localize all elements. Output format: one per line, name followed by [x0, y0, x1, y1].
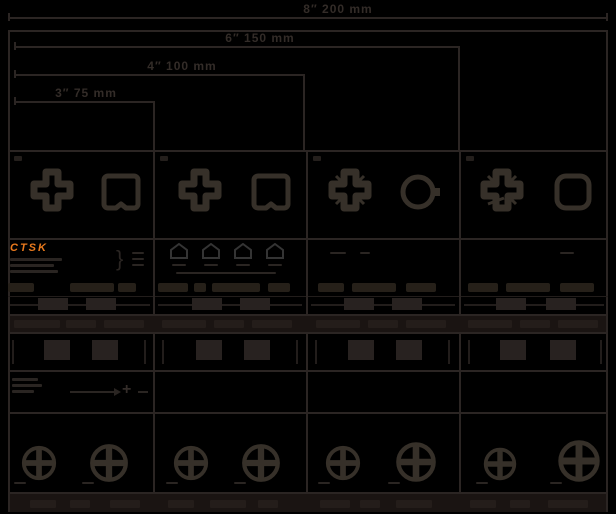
- band-token: [406, 320, 446, 328]
- row-divider: [8, 296, 608, 297]
- band-token: [316, 320, 360, 328]
- dimension-label-75mm: 3″ 75 mm: [32, 86, 140, 100]
- edge-tick: [144, 340, 146, 364]
- dimension-tick: [606, 13, 608, 21]
- code-box: [546, 298, 576, 310]
- text-blob: [132, 258, 144, 260]
- code-box: [550, 340, 576, 360]
- screw-size-blob: [82, 482, 94, 484]
- edge-tick: [600, 340, 602, 364]
- screw-head-icon: [482, 446, 518, 482]
- edge-tick: [162, 340, 164, 364]
- dimension-line: [14, 74, 305, 76]
- text-blob: [560, 252, 574, 254]
- band-token: [210, 500, 246, 508]
- screw-recess-icon: [552, 172, 594, 212]
- spec-chart: 8″ 200 mm 6″ 150 mm 4″ 100 mm 3″ 75 mm: [0, 0, 616, 514]
- text-blob: [204, 264, 218, 266]
- bit-tip-cross-mark: +: [122, 382, 131, 398]
- tip-profile-icon: [234, 243, 252, 259]
- code-line: [311, 304, 455, 306]
- label-chip: [8, 283, 34, 292]
- label-chip: [212, 283, 260, 292]
- cell-corner-mark: [160, 156, 168, 161]
- row-divider: [8, 332, 608, 334]
- screw-size-blob: [388, 482, 400, 484]
- band-token: [558, 320, 598, 328]
- band-token: [520, 320, 550, 328]
- text-blob: [330, 252, 346, 254]
- dimension-line: [14, 101, 155, 103]
- band-token: [548, 500, 588, 508]
- text-blob: [12, 378, 38, 381]
- label-chip: [506, 283, 550, 292]
- screw-size-blob: [550, 482, 562, 484]
- screw-size-blob: [234, 482, 246, 484]
- label-chip: [468, 283, 498, 292]
- band-token: [110, 500, 140, 508]
- code-box: [92, 340, 118, 360]
- code-box: [44, 340, 70, 360]
- label-chip: [352, 283, 396, 292]
- screw-recess-icon: [250, 172, 292, 212]
- dimension-drop-line: [458, 46, 460, 150]
- screw-recess-icon: [398, 172, 444, 212]
- text-blob: [268, 264, 282, 266]
- screw-recess-icon: [100, 172, 142, 212]
- label-chip: [560, 283, 594, 292]
- code-line: [10, 304, 150, 306]
- text-blob: [12, 390, 34, 393]
- code-box: [196, 340, 222, 360]
- edge-tick: [448, 340, 450, 364]
- edge-tick: [12, 340, 14, 364]
- band-token: [510, 500, 530, 508]
- dimension-drop-line: [303, 74, 305, 150]
- text-blob: [360, 252, 370, 254]
- code-box: [392, 298, 422, 310]
- screw-size-blob: [476, 482, 488, 484]
- band-token: [66, 320, 96, 328]
- band-token: [14, 320, 60, 328]
- pointer-tail-line: [138, 391, 148, 393]
- label-chip: [118, 283, 136, 292]
- code-box: [192, 298, 222, 310]
- screw-head-icon: [20, 444, 58, 482]
- phillips-bit-icon: [326, 168, 374, 212]
- tip-profile-icon: [266, 243, 284, 259]
- text-blob: [12, 384, 42, 387]
- label-chip: [194, 283, 206, 292]
- band-token: [70, 500, 90, 508]
- dimension-tick: [14, 97, 16, 105]
- band-token: [368, 320, 398, 328]
- label-chip: [268, 283, 290, 292]
- band-token: [30, 500, 56, 508]
- row-divider: [8, 238, 608, 240]
- text-blob: [172, 264, 186, 266]
- label-chip: [70, 283, 114, 292]
- cell-corner-mark: [313, 156, 321, 161]
- dimension-tick: [14, 42, 16, 50]
- screw-size-blob: [14, 482, 26, 484]
- band-token: [320, 500, 350, 508]
- code-box: [244, 340, 270, 360]
- dimension-drop-line: [153, 101, 155, 150]
- band-token: [360, 500, 380, 508]
- brace-mark: }: [116, 248, 123, 270]
- screw-head-icon: [394, 440, 438, 484]
- dimension-label-150mm: 6″ 150 mm: [198, 31, 322, 45]
- brand-logo: CTSK: [10, 242, 48, 254]
- band-token: [214, 320, 244, 328]
- dimension-line: [8, 17, 608, 19]
- pointer-arrow-head: [114, 388, 121, 396]
- code-box: [240, 298, 270, 310]
- band-token: [468, 320, 512, 328]
- row-divider: [8, 412, 608, 414]
- screw-head-icon: [240, 442, 282, 484]
- label-chip: [158, 283, 188, 292]
- code-box: [396, 340, 422, 360]
- edge-tick: [296, 340, 298, 364]
- screw-head-icon: [324, 444, 362, 482]
- code-box: [496, 298, 526, 310]
- tip-profile-icon: [170, 243, 188, 259]
- text-blob: [236, 264, 250, 266]
- code-box: [86, 298, 116, 310]
- phillips-bit-icon: [478, 168, 526, 212]
- band-token: [252, 320, 292, 328]
- label-chip: [318, 283, 344, 292]
- code-box: [500, 340, 526, 360]
- edge-tick: [315, 340, 317, 364]
- dimension-label-200mm: 8″ 200 mm: [268, 2, 408, 16]
- band-token: [168, 500, 194, 508]
- code-box: [38, 298, 68, 310]
- code-line: [158, 304, 302, 306]
- screw-size-blob: [318, 482, 330, 484]
- cell-corner-mark: [14, 156, 22, 161]
- text-blob: [176, 272, 276, 274]
- label-chip: [406, 283, 436, 292]
- edge-tick: [468, 340, 470, 364]
- band-token: [104, 320, 144, 328]
- code-line: [464, 304, 604, 306]
- phillips-bit-icon: [176, 168, 224, 212]
- dimension-tick: [14, 70, 16, 78]
- tip-profile-icon: [202, 243, 220, 259]
- band-token: [470, 500, 496, 508]
- screw-size-blob: [166, 482, 178, 484]
- screw-head-icon: [556, 438, 602, 484]
- dimension-tick: [8, 13, 10, 21]
- screw-head-icon: [172, 444, 210, 482]
- text-blob: [10, 258, 62, 261]
- text-blob: [10, 264, 54, 267]
- banner-band: [10, 316, 606, 332]
- band-token: [258, 500, 278, 508]
- row-divider: [8, 150, 608, 152]
- phillips-bit-icon: [28, 168, 76, 212]
- text-blob: [10, 270, 58, 273]
- dimension-label-100mm: 4″ 100 mm: [124, 59, 240, 73]
- band-token: [162, 320, 206, 328]
- cell-corner-mark: [466, 156, 474, 161]
- text-blob: [132, 252, 144, 254]
- text-blob: [132, 264, 144, 266]
- band-token: [396, 500, 432, 508]
- dimension-line: [14, 46, 460, 48]
- pointer-arrow-line: [70, 391, 114, 393]
- code-box: [344, 298, 374, 310]
- code-box: [348, 340, 374, 360]
- row-divider: [8, 370, 608, 372]
- screw-head-icon: [88, 442, 130, 484]
